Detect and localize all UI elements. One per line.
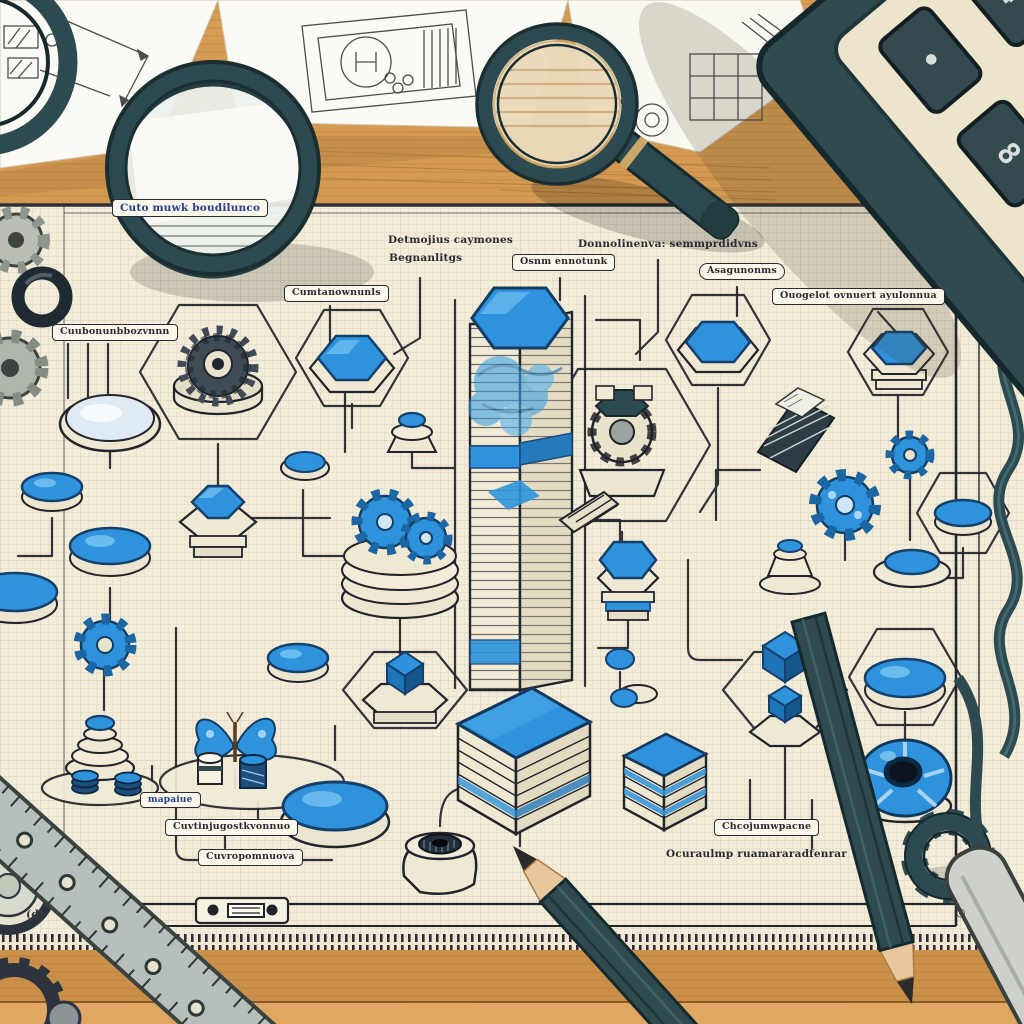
blue-disc — [70, 528, 150, 576]
slider-widget — [196, 898, 288, 923]
blue-disc — [935, 500, 991, 535]
blue-gear — [890, 435, 930, 475]
sheet-stamp-left: (d) — [26, 908, 44, 921]
widget-dot-right — [267, 905, 278, 916]
blue-oval — [281, 452, 329, 480]
illustration-canvas: 5 0 2 3 4 1 5 9 • 8 7 = — [0, 0, 1024, 1024]
sheet-stamp-right: ◎ — [956, 906, 966, 919]
blue-disc — [0, 573, 57, 623]
central-tower — [468, 288, 572, 690]
metal-gear — [0, 212, 44, 268]
layered-slab-right — [624, 734, 706, 830]
illustration-scene: 5 0 2 3 4 1 5 9 • 8 7 = — [0, 0, 1024, 1024]
hex-slab-stack — [598, 542, 658, 620]
lens — [60, 395, 160, 451]
widget-dot-left — [208, 905, 219, 916]
spool — [403, 833, 476, 894]
metal-gear — [0, 336, 42, 400]
widget-slider — [228, 904, 264, 917]
blue-disc — [268, 644, 328, 682]
blue-disc — [281, 782, 389, 847]
blue-disc — [865, 659, 945, 709]
blue-disc — [22, 473, 82, 511]
